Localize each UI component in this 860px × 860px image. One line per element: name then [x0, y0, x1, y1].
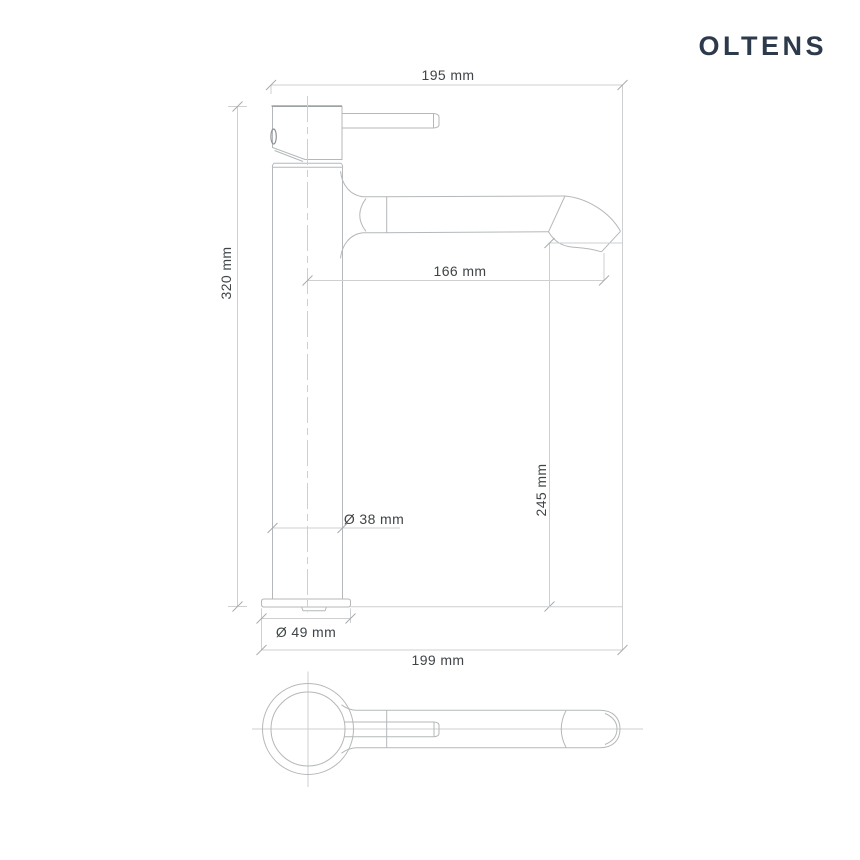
spout-tube — [363, 196, 565, 233]
dimension-label-body-diameter: Ø 38 mm — [344, 511, 404, 527]
dimension-annotations — [228, 80, 628, 655]
dimension-label-spout-reach: 166 mm — [434, 263, 487, 279]
lever-handle — [342, 114, 439, 129]
dimension-label-overall-length: 199 mm — [412, 652, 465, 668]
spout-flare-top — [341, 171, 364, 197]
page: OLTENS — [0, 0, 860, 860]
top-view-faucet — [252, 672, 643, 788]
base-notch — [302, 607, 327, 611]
top-spout-edge-lower — [342, 748, 601, 754]
dim-line-245 — [549, 243, 623, 607]
side-view-faucet — [262, 96, 621, 613]
head-side-dot — [271, 129, 276, 144]
dim-line-320 — [228, 107, 247, 607]
spout-bend-outer — [565, 196, 621, 231]
dimension-label-top-width: 195 mm — [422, 67, 475, 83]
dimension-label-total-height: 320 mm — [218, 247, 234, 300]
dimension-label-outlet-height: 245 mm — [533, 464, 549, 517]
spout-waist-arc — [360, 198, 366, 231]
spout-outlet-bottom — [549, 232, 602, 252]
spout-flare-bottom — [341, 233, 364, 258]
dim-line-195 — [271, 85, 623, 94]
dimension-label-base-diameter: Ø 49 mm — [276, 624, 336, 640]
head-bottom-inner-edge — [275, 151, 304, 162]
top-spout-edge-upper — [342, 705, 601, 711]
spout-tip-face — [602, 231, 621, 252]
base-flange — [262, 599, 351, 607]
technical-drawing — [0, 0, 860, 860]
spout-bend-joint — [549, 196, 566, 232]
